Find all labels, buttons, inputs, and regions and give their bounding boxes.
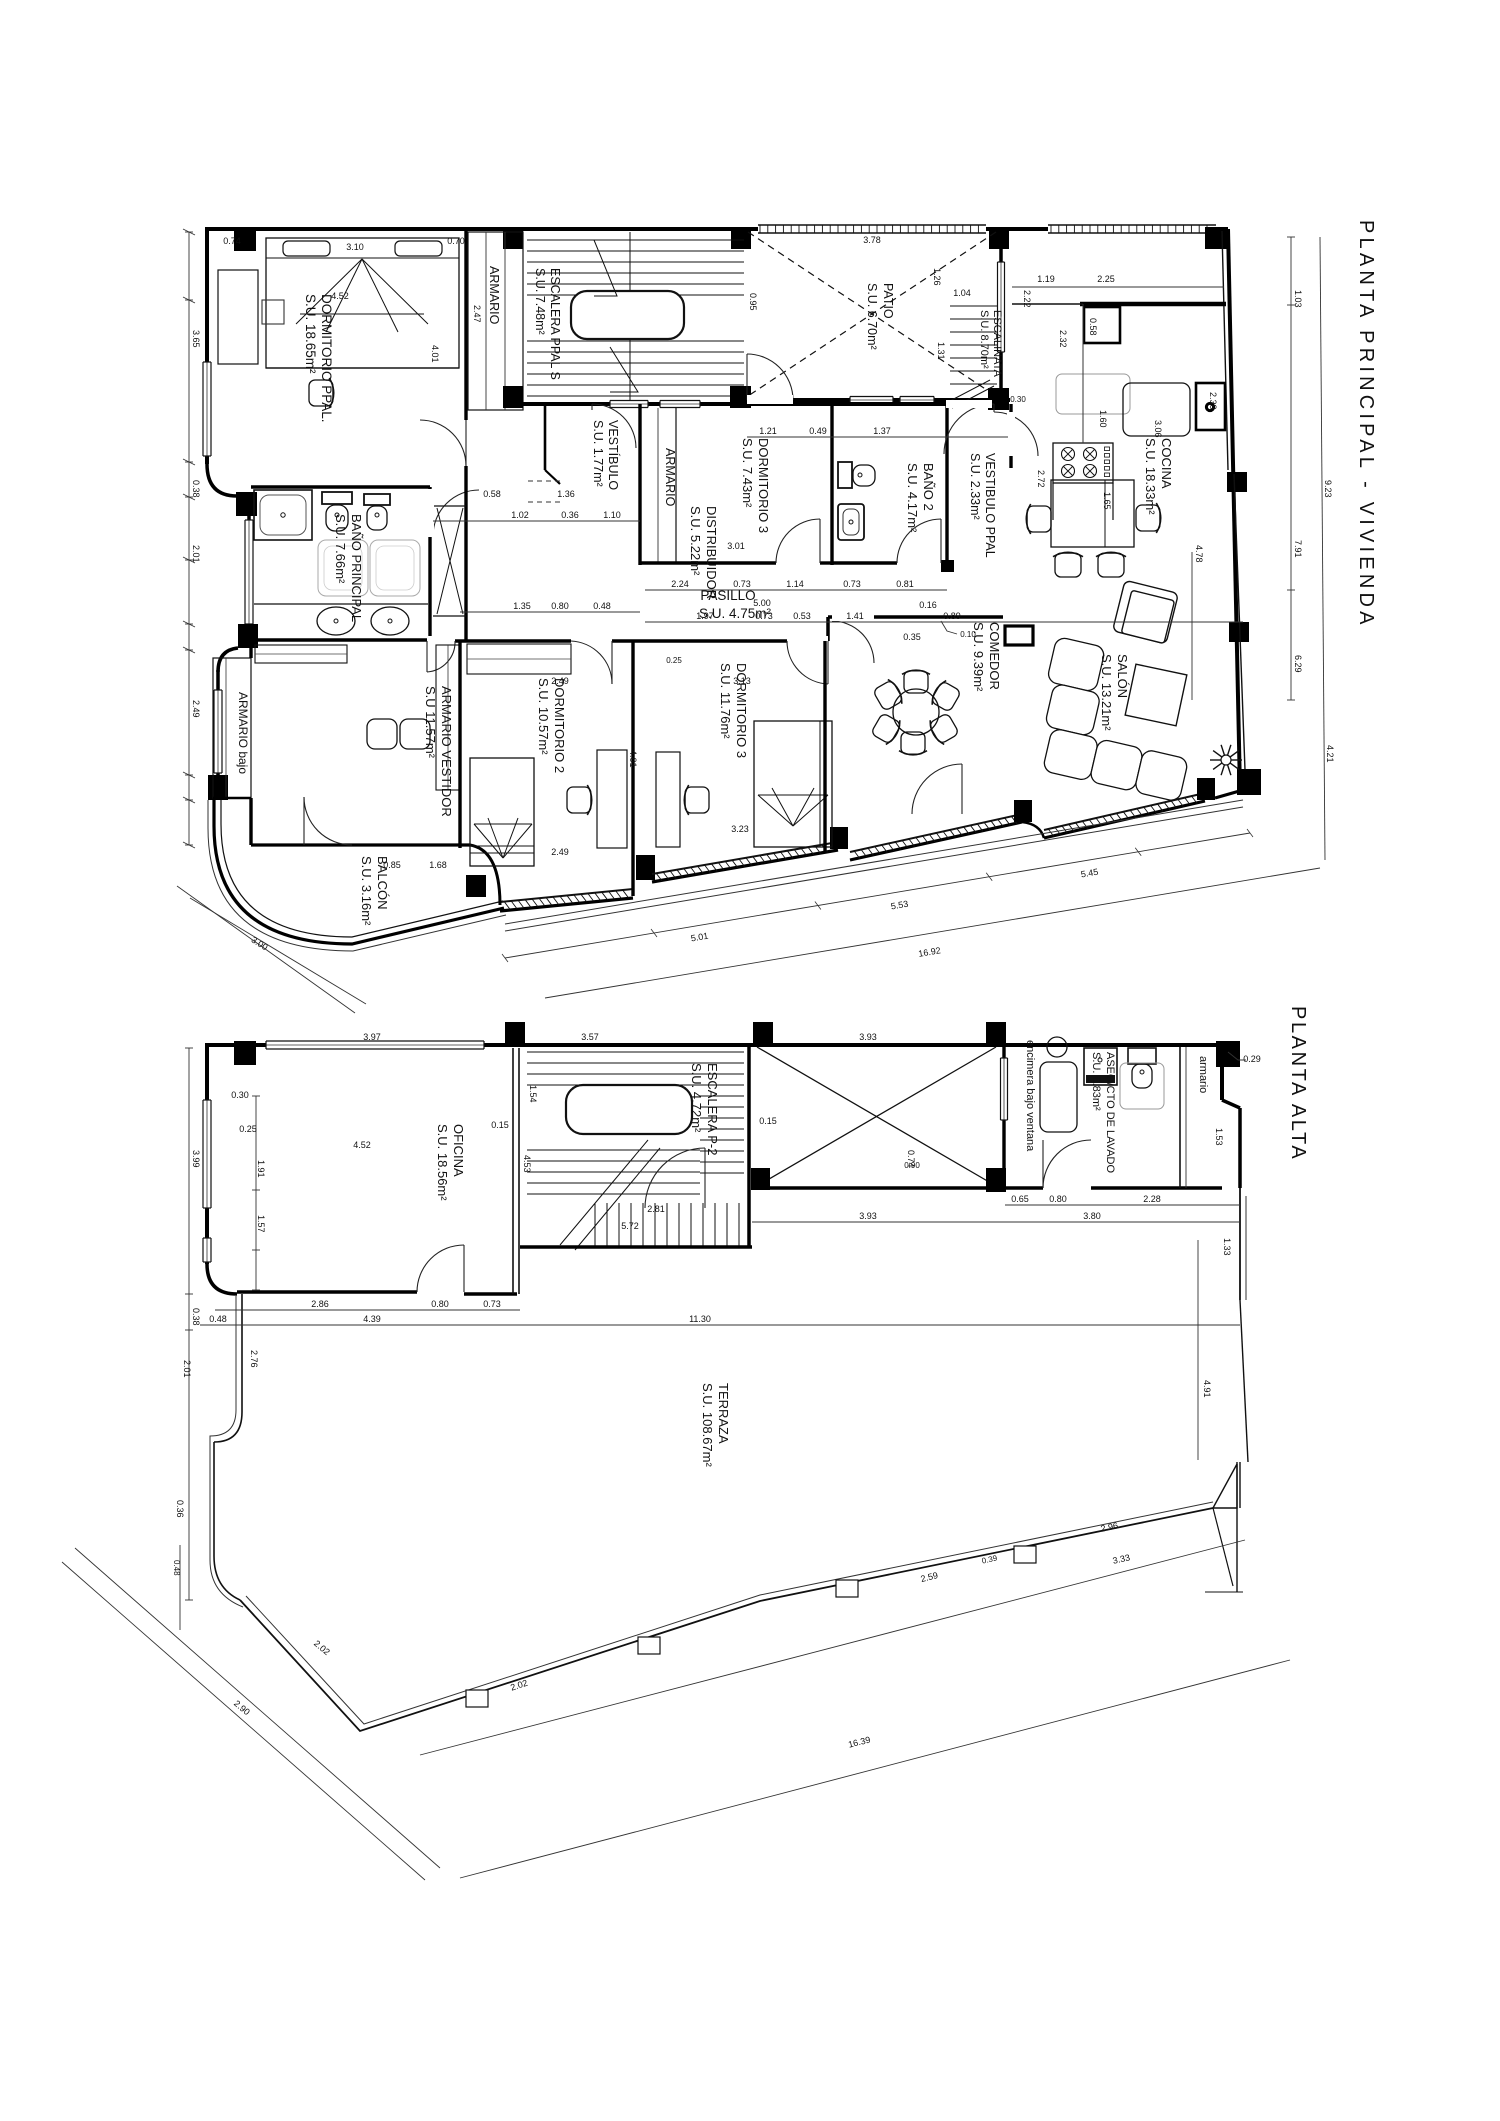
svg-text:TERRAZA: TERRAZA <box>716 1383 731 1444</box>
svg-text:S.U. 7.66m²: S.U. 7.66m² <box>333 514 348 584</box>
svg-text:7.91: 7.91 <box>1293 540 1303 558</box>
svg-text:ESCALERA PPAL S: ESCALERA PPAL S <box>548 268 562 380</box>
svg-text:PATIO: PATIO <box>881 283 895 319</box>
svg-text:2.24: 2.24 <box>671 579 689 589</box>
svg-text:ASEO/CTO DE LAVADO: ASEO/CTO DE LAVADO <box>1104 1052 1116 1173</box>
svg-text:0.25: 0.25 <box>239 1124 257 1134</box>
svg-text:3.97: 3.97 <box>363 1032 381 1042</box>
svg-text:4.91: 4.91 <box>1202 1380 1212 1398</box>
svg-text:armario: armario <box>1197 1056 1209 1093</box>
svg-text:4.01: 4.01 <box>628 750 638 768</box>
svg-text:2.76: 2.76 <box>249 1350 259 1368</box>
svg-text:3.78: 3.78 <box>863 235 881 245</box>
svg-text:S.U. 13.21m²: S.U. 13.21m² <box>1099 654 1114 731</box>
svg-text:ARMARIO bajo: ARMARIO bajo <box>236 692 250 774</box>
svg-text:S.U. 18.65m²: S.U. 18.65m² <box>303 294 318 374</box>
svg-text:0.73: 0.73 <box>843 579 861 589</box>
svg-text:S.U. 11.76m²: S.U. 11.76m² <box>718 663 733 739</box>
svg-text:COMEDOR: COMEDOR <box>987 622 1002 690</box>
svg-text:S.U. 18.33m²: S.U. 18.33m² <box>1143 438 1158 515</box>
svg-text:2.32: 2.32 <box>1058 330 1068 348</box>
svg-text:1.33: 1.33 <box>1222 1238 1232 1256</box>
svg-text:OFICINA: OFICINA <box>451 1124 466 1177</box>
svg-text:0.95: 0.95 <box>748 293 758 311</box>
svg-text:0.38: 0.38 <box>191 1308 201 1326</box>
svg-text:1.97: 1.97 <box>696 611 714 621</box>
svg-text:1.53: 1.53 <box>1214 1128 1224 1146</box>
svg-text:4.21: 4.21 <box>1325 745 1335 763</box>
svg-text:encimera bajo ventana: encimera bajo ventana <box>1024 1040 1036 1152</box>
svg-text:PLANTA PRINCIPAL - VIVIENDA: PLANTA PRINCIPAL - VIVIENDA <box>1355 220 1377 629</box>
svg-text:1.68: 1.68 <box>429 860 447 870</box>
svg-text:0.35: 0.35 <box>903 632 921 642</box>
svg-text:1.54: 1.54 <box>528 1085 538 1103</box>
svg-text:2.22: 2.22 <box>1022 290 1032 308</box>
svg-text:0.89: 0.89 <box>943 611 961 621</box>
svg-text:5.00: 5.00 <box>753 598 771 608</box>
svg-text:1.02: 1.02 <box>511 510 529 520</box>
svg-text:2.49: 2.49 <box>551 847 569 857</box>
svg-text:2.01: 2.01 <box>182 1360 192 1378</box>
svg-text:6.29: 6.29 <box>1293 655 1303 673</box>
svg-text:0.73: 0.73 <box>755 611 773 621</box>
svg-text:3.93: 3.93 <box>859 1032 877 1042</box>
svg-text:2.28: 2.28 <box>1143 1194 1161 1204</box>
svg-text:S.U 11.57m²: S.U 11.57m² <box>423 686 438 759</box>
svg-text:0.81: 0.81 <box>896 579 914 589</box>
svg-text:S.U. 1.77m²: S.U. 1.77m² <box>591 420 605 487</box>
svg-text:1.36: 1.36 <box>557 489 575 499</box>
svg-text:2.25: 2.25 <box>1097 274 1115 284</box>
svg-text:0.58: 0.58 <box>483 489 501 499</box>
svg-text:0.85: 0.85 <box>383 860 401 870</box>
svg-text:0.38: 0.38 <box>191 480 201 498</box>
svg-text:4.01: 4.01 <box>430 345 440 363</box>
svg-text:3.99: 3.99 <box>191 1150 201 1168</box>
svg-text:4.52: 4.52 <box>331 291 349 301</box>
svg-text:0.30: 0.30 <box>1010 395 1026 404</box>
svg-text:2.49: 2.49 <box>551 676 569 686</box>
svg-text:1.41: 1.41 <box>846 611 864 621</box>
svg-text:3.10: 3.10 <box>346 242 364 252</box>
svg-text:3.57: 3.57 <box>581 1032 599 1042</box>
svg-text:0.90: 0.90 <box>904 1161 920 1170</box>
svg-text:0.65: 0.65 <box>1011 1194 1029 1204</box>
svg-text:S.U. 4.17m²: S.U. 4.17m² <box>905 463 920 533</box>
svg-text:VESTIBULO PPAL: VESTIBULO PPAL <box>983 453 997 558</box>
svg-text:0.53: 0.53 <box>793 611 811 621</box>
svg-text:3.06: 3.06 <box>1153 420 1163 438</box>
svg-text:5.72: 5.72 <box>621 1221 639 1231</box>
svg-text:S.U. 8.70m²: S.U. 8.70m² <box>978 310 990 369</box>
svg-text:DORMITORIO PPAL.: DORMITORIO PPAL. <box>319 294 334 423</box>
svg-text:0.48: 0.48 <box>209 1314 227 1324</box>
svg-text:VESTÍBULO: VESTÍBULO <box>606 420 621 490</box>
svg-text:S.U. 108.67m²: S.U. 108.67m² <box>700 1383 715 1467</box>
svg-text:0.70: 0.70 <box>447 236 465 246</box>
svg-text:1.65: 1.65 <box>1102 492 1112 510</box>
svg-text:0.15: 0.15 <box>759 1116 777 1126</box>
svg-text:COCINA: COCINA <box>1159 438 1174 489</box>
svg-text:0.16: 0.16 <box>919 600 937 610</box>
svg-text:0.36: 0.36 <box>175 1500 185 1518</box>
svg-text:0.73: 0.73 <box>733 579 751 589</box>
svg-text:S.U. 4.72m²: S.U. 4.72m² <box>689 1063 704 1133</box>
svg-text:2.01: 2.01 <box>191 545 201 563</box>
svg-text:S.U. 5.22m²: S.U. 5.22m² <box>688 506 703 576</box>
svg-text:2.47: 2.47 <box>472 305 482 323</box>
svg-text:1.60: 1.60 <box>1098 410 1108 428</box>
svg-text:0.80: 0.80 <box>551 601 569 611</box>
svg-text:1.37: 1.37 <box>873 426 891 436</box>
svg-text:11.30: 11.30 <box>689 1314 711 1324</box>
svg-text:3.65: 3.65 <box>191 330 201 348</box>
svg-text:S.U. 7.43m²: S.U. 7.43m² <box>740 438 755 508</box>
svg-text:0.36: 0.36 <box>561 510 579 520</box>
svg-text:1.57: 1.57 <box>256 1215 266 1233</box>
svg-text:3.13: 3.13 <box>733 676 751 686</box>
svg-text:2.72: 2.72 <box>1036 470 1046 488</box>
svg-text:9.23: 9.23 <box>1323 480 1333 498</box>
svg-text:3.93: 3.93 <box>859 1211 877 1221</box>
svg-text:DORMITORIO 3: DORMITORIO 3 <box>756 438 771 533</box>
svg-text:S.U. 3.16m²: S.U. 3.16m² <box>359 856 374 926</box>
svg-text:DORMITORIO 2: DORMITORIO 2 <box>552 678 567 773</box>
svg-text:4.52: 4.52 <box>353 1140 371 1150</box>
svg-text:0.48: 0.48 <box>593 601 611 611</box>
svg-text:1.91: 1.91 <box>256 1160 266 1178</box>
svg-text:0.25: 0.25 <box>666 656 682 665</box>
svg-text:0.48: 0.48 <box>172 1560 181 1576</box>
svg-text:S.U. 7.48m²: S.U. 7.48m² <box>533 268 547 335</box>
svg-text:ARMARIO VESTIDOR: ARMARIO VESTIDOR <box>439 686 454 817</box>
svg-text:BAÑO 2: BAÑO 2 <box>921 463 936 511</box>
svg-text:0.73: 0.73 <box>483 1299 501 1309</box>
svg-text:1.03: 1.03 <box>1293 290 1303 308</box>
svg-text:0.58: 0.58 <box>1088 318 1098 336</box>
svg-text:0.74: 0.74 <box>223 236 241 246</box>
svg-text:PLANTA ALTA: PLANTA ALTA <box>1287 1006 1309 1161</box>
svg-text:0.80: 0.80 <box>1049 1194 1067 1204</box>
svg-text:4.39: 4.39 <box>363 1314 381 1324</box>
svg-text:1.21: 1.21 <box>759 426 777 436</box>
svg-text:0.10: 0.10 <box>960 630 976 639</box>
svg-text:3.23: 3.23 <box>731 824 749 834</box>
svg-text:DISTRIBUIDOR: DISTRIBUIDOR <box>704 506 719 599</box>
svg-text:1.14: 1.14 <box>786 579 804 589</box>
svg-text:1.35: 1.35 <box>513 601 531 611</box>
svg-text:ARMARIO: ARMARIO <box>663 448 677 507</box>
svg-text:ESCALINATA: ESCALINATA <box>991 310 1003 377</box>
svg-text:BAÑO PRINCIPAL: BAÑO PRINCIPAL <box>349 514 364 622</box>
svg-text:S.U. 8.83m²: S.U. 8.83m² <box>1090 1052 1102 1111</box>
svg-text:S.U. 18.56m²: S.U. 18.56m² <box>435 1124 450 1201</box>
svg-text:0.15: 0.15 <box>491 1120 509 1130</box>
svg-text:2.38: 2.38 <box>1208 392 1218 410</box>
svg-text:S.U. 10.57m²: S.U. 10.57m² <box>536 678 551 755</box>
svg-text:S.U. 2.33m²: S.U. 2.33m² <box>968 453 982 520</box>
svg-text:0.30: 0.30 <box>231 1090 249 1100</box>
svg-text:ARMARIO: ARMARIO <box>487 266 501 325</box>
svg-text:ESCALERA P-2: ESCALERA P-2 <box>705 1063 720 1156</box>
svg-text:1.31: 1.31 <box>936 342 946 360</box>
svg-text:0.80: 0.80 <box>431 1299 449 1309</box>
svg-text:2.81: 2.81 <box>647 1204 665 1214</box>
svg-text:3.80: 3.80 <box>1083 1211 1101 1221</box>
svg-text:0.29: 0.29 <box>1243 1054 1261 1064</box>
svg-text:3.01: 3.01 <box>727 541 745 551</box>
svg-text:1.26: 1.26 <box>932 268 942 286</box>
svg-text:1.19: 1.19 <box>1037 274 1055 284</box>
svg-text:1.04: 1.04 <box>953 288 971 298</box>
svg-text:2.49: 2.49 <box>191 700 201 718</box>
svg-text:4.78: 4.78 <box>1194 545 1204 563</box>
svg-text:2.86: 2.86 <box>311 1299 329 1309</box>
svg-text:1.10: 1.10 <box>603 510 621 520</box>
svg-text:4.53: 4.53 <box>522 1155 532 1173</box>
svg-text:SALÓN: SALÓN <box>1115 654 1130 698</box>
svg-text:0.49: 0.49 <box>809 426 827 436</box>
svg-text:S.U. 6.70m²: S.U. 6.70m² <box>865 283 879 350</box>
